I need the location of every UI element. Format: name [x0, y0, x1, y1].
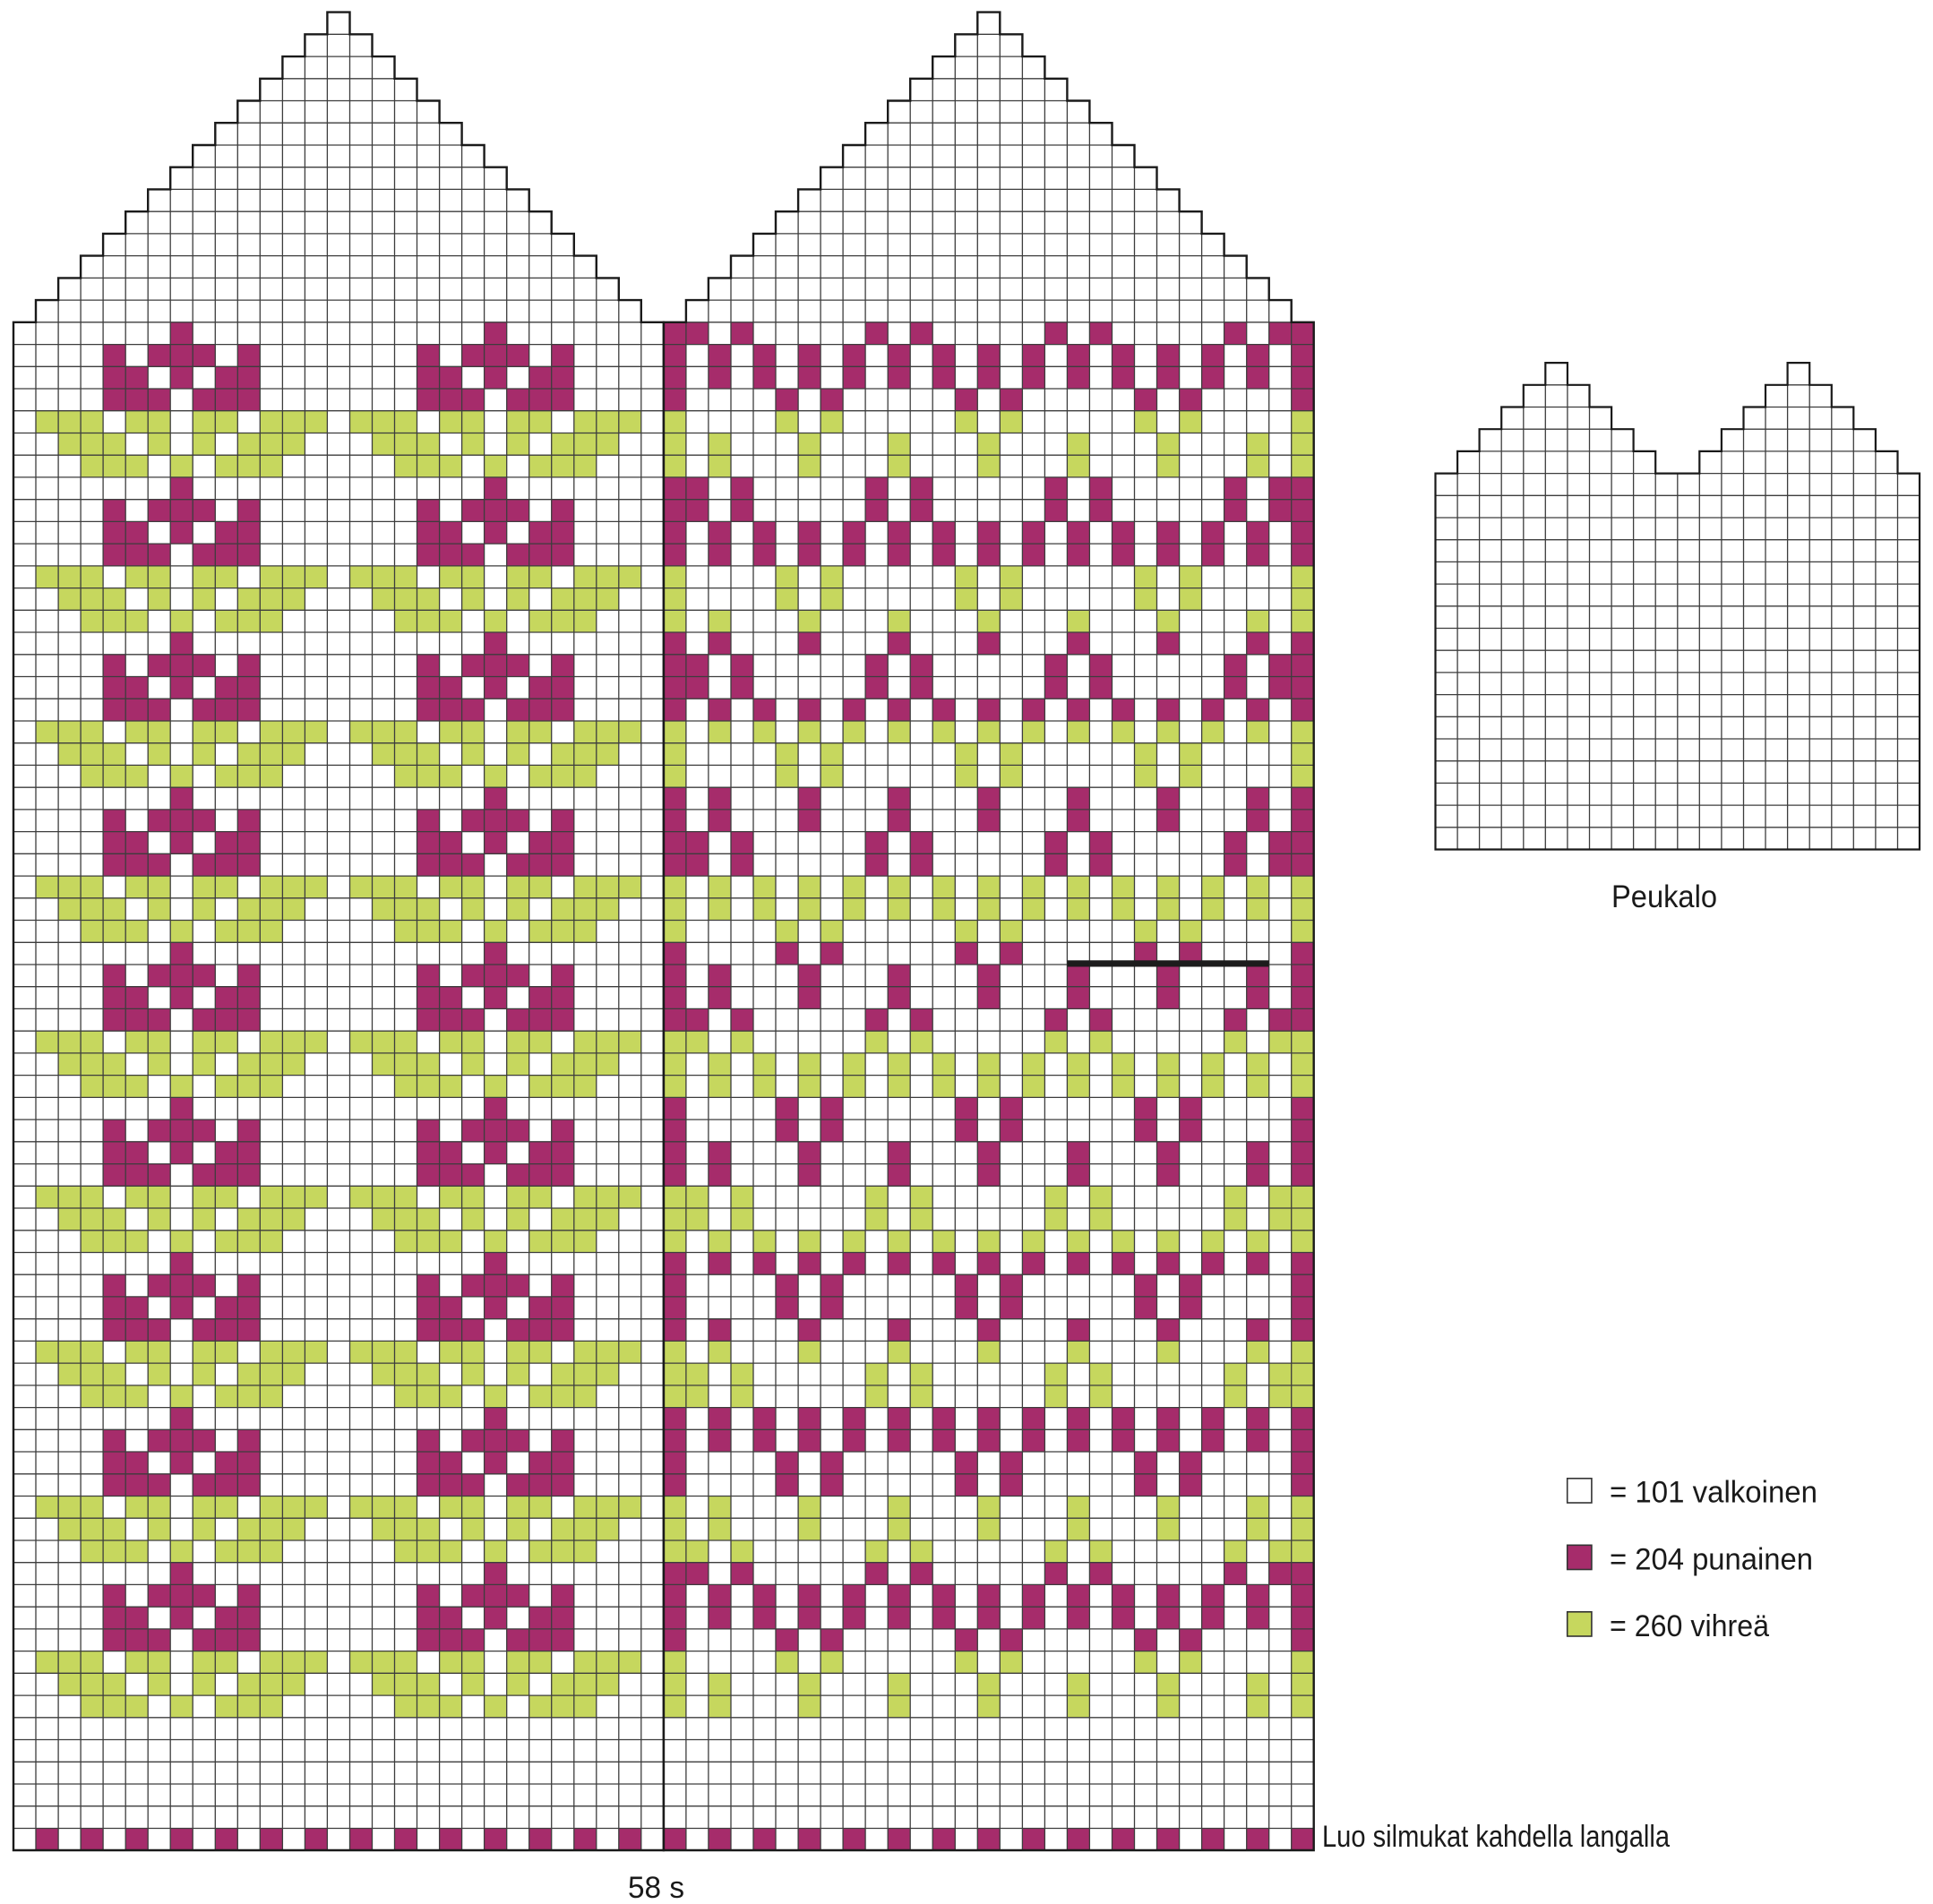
svg-text:= 101 valkoinen: = 101 valkoinen	[1610, 1476, 1817, 1510]
svg-text:= 204 punainen: = 204 punainen	[1610, 1543, 1813, 1577]
svg-text:58 s: 58 s	[628, 1871, 684, 1900]
svg-text:= 260 vihreä: = 260 vihreä	[1610, 1609, 1769, 1643]
svg-text:Peukalo: Peukalo	[1611, 879, 1717, 914]
svg-text:Luo silmukat kahdella langalla: Luo silmukat kahdella langalla	[1322, 1820, 1670, 1854]
